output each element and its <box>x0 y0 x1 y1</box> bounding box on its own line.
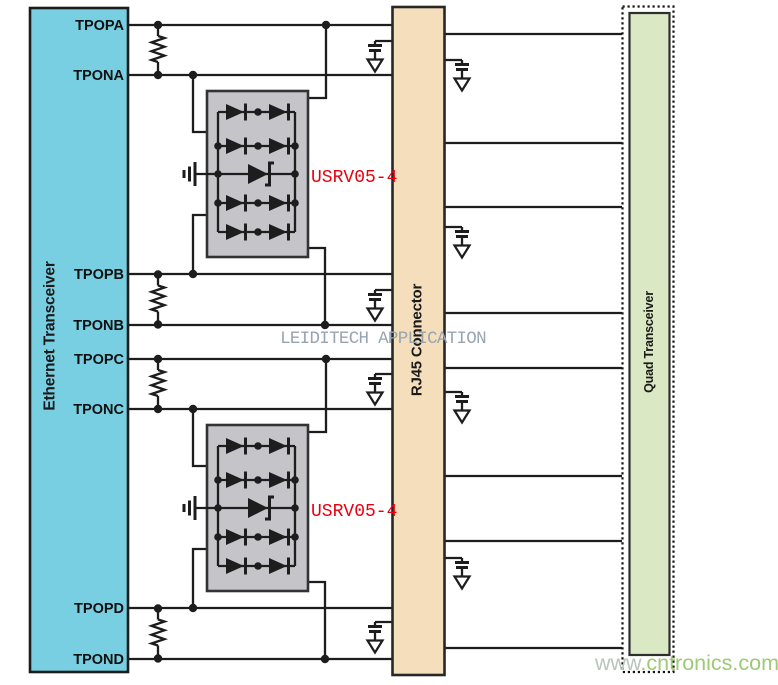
cap-ground-icon <box>455 60 470 91</box>
cap-ground-icon <box>368 41 383 72</box>
cap-ground-icon <box>368 374 383 405</box>
pin-label-tpond: TPOND <box>73 652 124 668</box>
cap-ground-icon <box>368 622 383 653</box>
pin-label-tpopb: TPOPB <box>74 267 124 283</box>
pin-label-tponc: TPONC <box>73 402 124 418</box>
cap-ground-icon <box>455 558 470 589</box>
cap-ground-icon <box>455 227 470 258</box>
watermark-site: www.cntronics.com <box>594 651 778 675</box>
quad-transceiver-label: Quad Transceiver <box>642 291 656 393</box>
cap-ground-icon <box>455 392 470 423</box>
pin-label-tpopc: TPOPC <box>74 352 124 368</box>
tvs-array-lower <box>184 355 330 663</box>
center-tap-caps-right <box>445 60 470 589</box>
app-note-schematic-page: Ethernet Transceiver RJ45 Connector Quad… <box>0 0 778 685</box>
cap-ground-icon <box>368 290 383 321</box>
termination-resistor-pair-c <box>152 355 165 413</box>
circuit-schematic: Ethernet Transceiver RJ45 Connector Quad… <box>0 0 778 685</box>
pin-label-tpopd: TPOPD <box>74 601 124 617</box>
tvs-part-number-lower: USRV05-4 <box>311 502 397 522</box>
termination-resistor-pair-a <box>152 21 165 79</box>
termination-resistor-pair-d <box>152 604 165 662</box>
watermark-application-note: LEIDITECH APPLICATION <box>280 329 486 349</box>
tvs-array-upper <box>184 21 330 329</box>
termination-resistor-pair-b <box>152 270 165 328</box>
ethernet-transceiver-label: Ethernet Transceiver <box>42 261 59 411</box>
pin-label-tponb: TPONB <box>73 318 124 334</box>
pin-label-tpona: TPONA <box>73 68 124 84</box>
tvs-part-number-upper: USRV05-4 <box>311 168 397 188</box>
pin-label-tpopa: TPOPA <box>75 18 124 34</box>
watermark-site-domain: .cntronics.com <box>640 651 778 675</box>
watermark-site-www: www <box>594 651 642 675</box>
